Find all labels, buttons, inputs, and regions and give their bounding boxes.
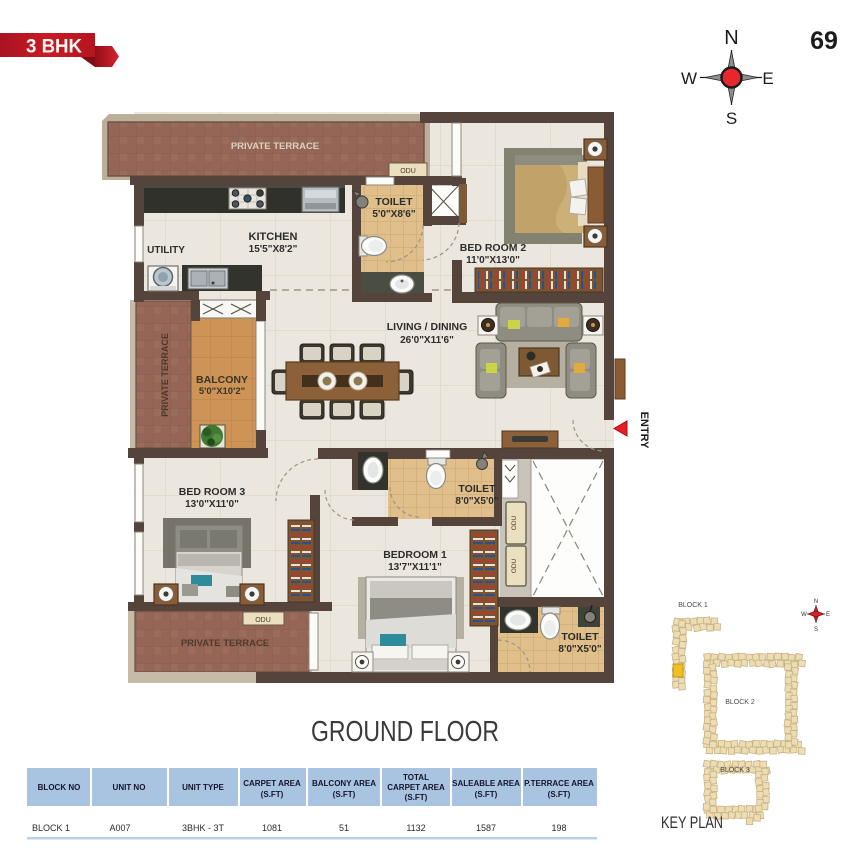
svg-text:13'7"X11'1": 13'7"X11'1" bbox=[388, 562, 442, 573]
svg-text:1587: 1587 bbox=[476, 823, 496, 833]
svg-text:13'0"X11'0": 13'0"X11'0" bbox=[185, 499, 239, 510]
svg-text:(S.FT): (S.FT) bbox=[548, 790, 571, 799]
svg-text:TOILET: TOILET bbox=[375, 196, 413, 208]
svg-text:S: S bbox=[726, 109, 737, 128]
svg-text:GROUND FLOOR: GROUND FLOOR bbox=[311, 716, 499, 748]
svg-text:69: 69 bbox=[810, 27, 838, 55]
svg-text:8'0"X5'0": 8'0"X5'0" bbox=[558, 644, 601, 655]
svg-text:BLOCK NO: BLOCK NO bbox=[38, 783, 81, 792]
svg-text:PRIVATE TERRACE: PRIVATE TERRACE bbox=[181, 638, 269, 649]
svg-text:UNIT TYPE: UNIT TYPE bbox=[182, 783, 224, 792]
svg-text:(S.FT): (S.FT) bbox=[405, 793, 428, 802]
svg-text:(S.FT): (S.FT) bbox=[261, 790, 284, 799]
svg-text:26'0"X11'6": 26'0"X11'6" bbox=[400, 335, 454, 346]
svg-text:8'0"X5'0": 8'0"X5'0" bbox=[455, 496, 498, 507]
svg-text:LIVING / DINING: LIVING / DINING bbox=[387, 321, 468, 333]
svg-text:BLOCK 2: BLOCK 2 bbox=[725, 699, 755, 706]
svg-text:KEY PLAN: KEY PLAN bbox=[661, 813, 723, 832]
svg-text:BLOCK 3: BLOCK 3 bbox=[720, 767, 750, 774]
svg-text:5'0"X8'6": 5'0"X8'6" bbox=[372, 209, 415, 220]
svg-text:51: 51 bbox=[339, 823, 349, 833]
svg-text:UTILITY: UTILITY bbox=[147, 245, 185, 256]
svg-text:SALEABLE AREA: SALEABLE AREA bbox=[452, 779, 520, 788]
svg-text:BLOCK 1: BLOCK 1 bbox=[32, 823, 70, 833]
svg-text:TOILET: TOILET bbox=[458, 483, 496, 495]
svg-text:E: E bbox=[762, 69, 773, 88]
svg-text:TOTAL: TOTAL bbox=[403, 773, 429, 782]
svg-text:KITCHEN: KITCHEN bbox=[249, 231, 298, 243]
svg-text:1132: 1132 bbox=[406, 823, 425, 833]
svg-text:CARPET AREA: CARPET AREA bbox=[243, 779, 301, 788]
svg-text:A007: A007 bbox=[109, 823, 130, 833]
svg-text:BED ROOM 3: BED ROOM 3 bbox=[179, 486, 246, 498]
svg-text:S: S bbox=[814, 627, 818, 633]
svg-text:5'0"X10'2": 5'0"X10'2" bbox=[199, 386, 245, 397]
svg-text:(S.FT): (S.FT) bbox=[333, 790, 356, 799]
svg-text:3 BHK: 3 BHK bbox=[26, 37, 82, 58]
svg-text:BLOCK 1: BLOCK 1 bbox=[678, 602, 708, 609]
svg-text:BALCONY: BALCONY bbox=[196, 374, 248, 386]
svg-text:BEDROOM 1: BEDROOM 1 bbox=[383, 549, 447, 561]
svg-text:E: E bbox=[826, 612, 830, 618]
svg-text:3BHK - 3T: 3BHK - 3T bbox=[182, 823, 225, 833]
svg-text:ENTRY: ENTRY bbox=[638, 412, 650, 450]
svg-text:PRIVATE TERRACE: PRIVATE TERRACE bbox=[160, 333, 170, 417]
svg-text:P.TERRACE AREA: P.TERRACE AREA bbox=[524, 779, 594, 788]
svg-text:198: 198 bbox=[551, 823, 566, 833]
svg-text:ODU: ODU bbox=[511, 515, 518, 530]
svg-text:BALCONY AREA: BALCONY AREA bbox=[312, 779, 376, 788]
svg-text:BED ROOM 2: BED ROOM 2 bbox=[460, 242, 527, 254]
svg-text:N: N bbox=[814, 599, 818, 605]
svg-text:ODU: ODU bbox=[255, 617, 271, 624]
svg-text:TOILET: TOILET bbox=[561, 631, 599, 643]
svg-text:1081: 1081 bbox=[262, 823, 282, 833]
svg-text:ODU: ODU bbox=[511, 558, 518, 573]
svg-text:W: W bbox=[801, 612, 807, 618]
svg-text:15'5"X8'2": 15'5"X8'2" bbox=[249, 244, 298, 255]
svg-text:ODU: ODU bbox=[400, 168, 416, 175]
svg-text:CARPET AREA: CARPET AREA bbox=[387, 783, 445, 792]
svg-text:N: N bbox=[724, 27, 738, 49]
svg-text:UNIT NO: UNIT NO bbox=[113, 783, 146, 792]
svg-text:W: W bbox=[681, 69, 697, 88]
svg-text:(S.FT): (S.FT) bbox=[475, 790, 498, 799]
svg-text:PRIVATE TERRACE: PRIVATE TERRACE bbox=[231, 141, 319, 152]
svg-text:11'0"X13'0": 11'0"X13'0" bbox=[466, 255, 520, 266]
